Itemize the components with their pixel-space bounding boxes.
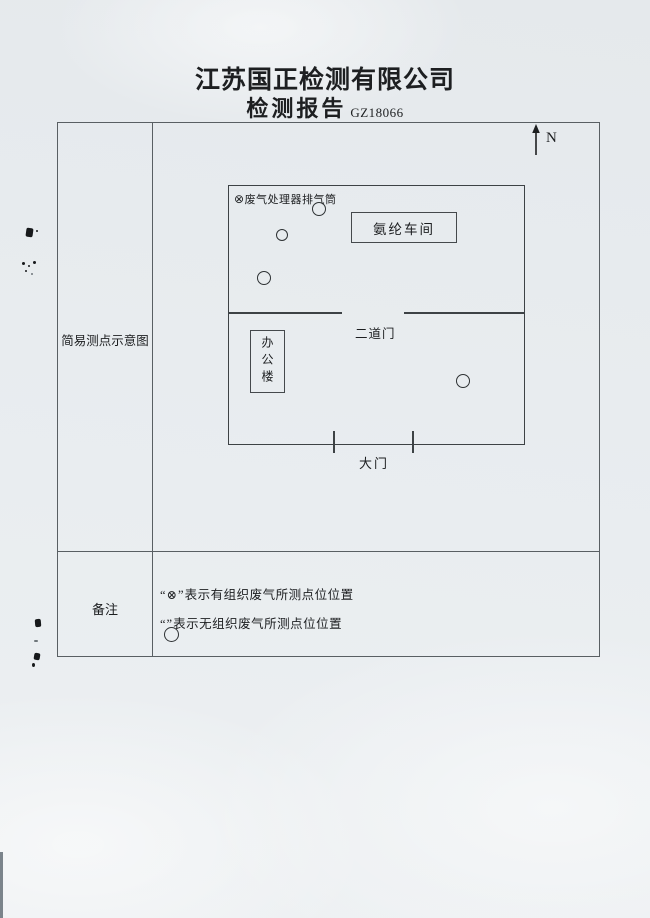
remark-unorganized-text: 表示无组织废气所测点位位置 [173,617,342,631]
ink-speck [25,228,33,238]
ink-speck [22,262,25,265]
remarks-row-label: 备注 [58,599,152,618]
main-gate-post-right [412,431,414,453]
spandex-workshop-label: 氨纶车间 [373,218,435,238]
scanned-report-page: 江苏国正检测有限公司 检测报告GZ18066 简易测点示意图 备注 N ⊗废气处… [0,0,650,918]
unorganized-point-icon [164,627,179,642]
ink-speck [33,653,40,661]
ink-speck [25,270,27,272]
north-label: N [546,130,557,147]
inner-wall-left [229,312,342,314]
remark-unorganized: “”表示无组织废气所测点位位置 [160,613,342,632]
inner-wall-right [404,312,524,314]
north-arrow-icon [529,124,543,156]
second-gate-label: 二道门 [355,323,396,342]
measurement-point [257,271,271,285]
report-title: 检测报告GZ18066 [0,91,650,123]
ink-speck [32,663,35,667]
site-boundary: ⊗废气处理器排气筒 氨纶车间 二道门 办公楼 [228,185,525,445]
office-building-box: 办公楼 [250,330,285,393]
diagram-row-label: 简易测点示意图 [58,330,152,349]
main-gate-label: 大门 [359,453,389,472]
ink-speck [28,265,30,267]
table-column-divider [152,122,153,656]
remark-organized: “⊗”表示有组织废气所测点位位置 [160,584,354,603]
measurement-point [312,202,326,216]
organized-symbol: “⊗” [160,588,185,602]
report-title-text: 检测报告 [246,96,346,121]
ink-speck [31,273,33,275]
office-building-label: 办公楼 [259,336,276,387]
ink-speck [35,619,42,627]
table-row-divider [57,551,599,552]
ink-speck [34,640,38,642]
remark-organized-text: 表示有组织废气所测点位位置 [185,588,354,602]
ink-speck [33,261,36,264]
scan-edge-shadow [0,852,3,918]
main-gate-post-left [333,431,335,453]
measurement-point [276,229,288,241]
organized-point-icon: ⊗ [234,192,245,206]
report-number: GZ18066 [350,105,403,120]
measurement-point [456,374,470,388]
ink-speck [36,230,38,232]
spandex-workshop-box: 氨纶车间 [351,212,457,243]
